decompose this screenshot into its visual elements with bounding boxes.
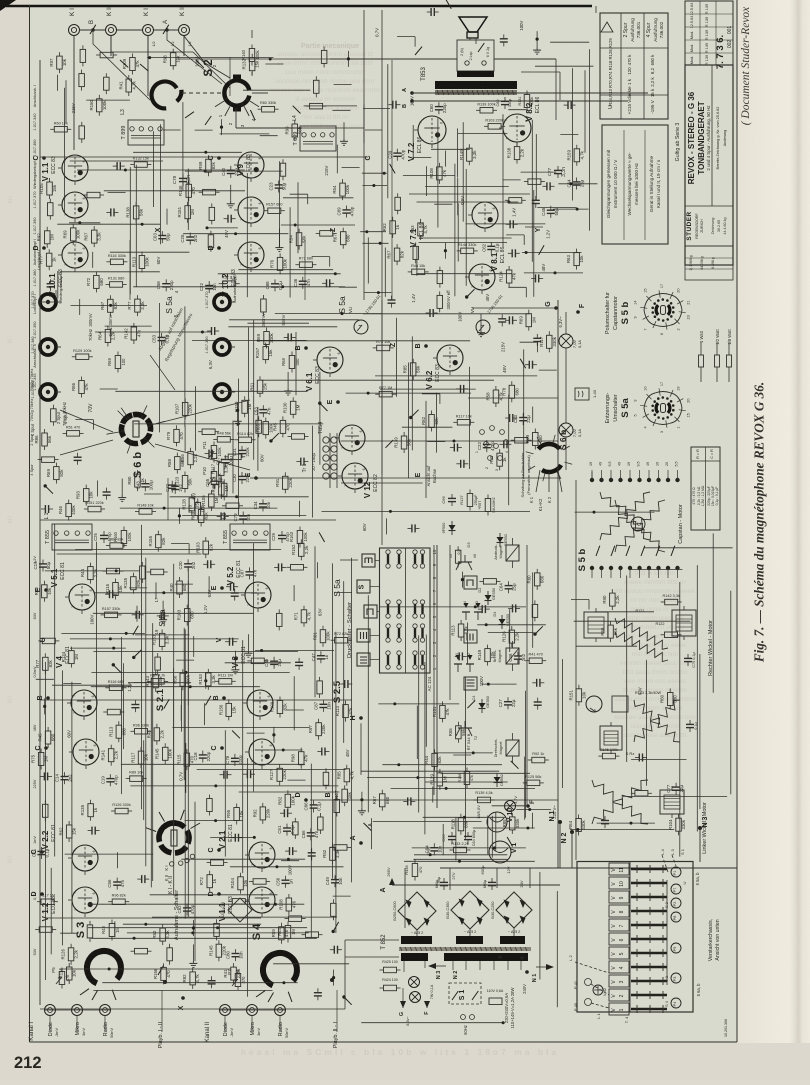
svg-text:19: 19: [154, 629, 159, 634]
svg-text:50μ: 50μ: [282, 182, 287, 190]
svg-text:f 4: f 4: [463, 601, 467, 605]
svg-text:6: 6: [337, 352, 341, 354]
svg-text:47n: 47n: [314, 830, 319, 838]
svg-text:9F550: 9F550: [442, 523, 446, 534]
svg-text:47k: 47k: [304, 754, 309, 762]
svg-text:212: 212: [14, 1054, 42, 1072]
svg-text:1.017.370: 1.017.370: [205, 292, 209, 309]
svg-text:12.5.64: 12.5.64: [690, 3, 694, 16]
svg-text:22μ: 22μ: [526, 415, 531, 423]
svg-text:R125 56k: R125 56k: [525, 775, 541, 779]
svg-text:225V: 225V: [33, 779, 37, 788]
svg-text:D: D: [208, 891, 215, 896]
svg-text:eee mmm ooo eeeee: eee mmm ooo eeeee: [624, 678, 686, 685]
svg-text:56k: 56k: [416, 365, 421, 373]
svg-text:48V: 48V: [541, 264, 546, 272]
svg-text:C14: C14: [55, 774, 60, 783]
svg-text:2: 2: [74, 909, 78, 911]
svg-text:ll1l: ll1l: [8, 516, 14, 523]
svg-text:C66: C66: [301, 830, 306, 839]
svg-text:60V: 60V: [156, 257, 161, 265]
svg-text:C32: C32: [165, 483, 170, 492]
svg-text:P1: P1: [673, 871, 677, 876]
svg-text:6: 6: [258, 202, 262, 204]
svg-text:R109: R109: [270, 701, 275, 712]
svg-text:( Document Studer-Revox: ( Document Studer-Revox: [740, 6, 752, 125]
svg-text:82k: 82k: [208, 543, 213, 551]
svg-text:215V: 215V: [324, 165, 329, 175]
svg-text:C61: C61: [277, 825, 282, 834]
svg-text:K1+K2: K1+K2: [538, 498, 543, 511]
svg-text:rrr rrrr nnn aaaaa: rrr rrrr nnn aaaaa: [630, 597, 680, 604]
svg-text:470 : 470 Ω: 470 : 470 Ω: [692, 487, 696, 505]
svg-text:2n2: 2n2: [193, 234, 198, 242]
svg-text:0,7V: 0,7V: [375, 28, 380, 37]
svg-text:680: 680: [538, 435, 543, 443]
svg-text:100k: 100k: [71, 505, 76, 515]
svg-text:Drucktaster - Schalter: Drucktaster - Schalter: [347, 602, 353, 658]
svg-text:Mikro: Mikro: [250, 1022, 256, 1035]
svg-text:100k: 100k: [145, 256, 150, 266]
svg-text:0,1μ: 0,1μ: [290, 825, 295, 834]
svg-text:R90: R90: [602, 595, 607, 604]
svg-text:7: 7: [318, 352, 322, 354]
svg-text:RT 544 B: RT 544 B: [466, 733, 471, 750]
svg-text:R40: R40: [169, 583, 174, 592]
svg-text:C87: C87: [240, 569, 245, 578]
svg-text:iii eeeeee rrr mmmm: iii eeeeee rrr mmmm: [295, 96, 355, 103]
svg-text:R71: R71: [294, 612, 299, 621]
svg-text:4,7k: 4,7k: [579, 150, 584, 159]
svg-text:15k: 15k: [268, 349, 273, 357]
svg-text:12V: 12V: [506, 866, 511, 873]
svg-text:A: A: [350, 835, 357, 840]
svg-text:680: 680: [190, 611, 195, 619]
svg-text:680: 680: [182, 583, 187, 591]
svg-text:7: 7: [250, 892, 254, 894]
svg-text:9: 9: [633, 316, 637, 318]
svg-text:100k: 100k: [290, 795, 295, 805]
svg-text:C30: C30: [232, 473, 237, 481]
svg-text:17: 17: [154, 597, 159, 602]
svg-text:1M: 1M: [74, 654, 79, 660]
svg-text:R75: R75: [31, 754, 36, 763]
svg-text:7: 7: [72, 695, 76, 697]
svg-text:7: 7: [473, 207, 477, 209]
svg-text:4,7k: 4,7k: [307, 611, 312, 620]
svg-text:1 k: 1 k: [627, 78, 632, 85]
svg-text:T 899: T 899: [121, 126, 127, 140]
svg-text:17: 17: [660, 382, 664, 386]
svg-text:15k: 15k: [255, 60, 260, 68]
svg-text:R86: R86: [71, 382, 76, 391]
svg-text:F: F: [530, 800, 536, 804]
svg-text:6: 6: [269, 847, 273, 849]
svg-text:0,1A: 0,1A: [577, 340, 582, 349]
svg-text:2: 2: [249, 712, 253, 714]
svg-text:56k: 56k: [297, 126, 302, 134]
svg-text:82k: 82k: [400, 250, 405, 258]
svg-text:7: 7: [419, 121, 423, 123]
svg-text:N 1: N 1: [549, 810, 556, 821]
svg-text:6,3v~: 6,3v~: [406, 1016, 410, 1026]
svg-text:300mV eff: 300mV eff: [446, 290, 451, 310]
svg-text:680: 680: [121, 727, 126, 735]
svg-text:R151: R151: [568, 689, 573, 700]
svg-text:680: 680: [51, 733, 56, 741]
svg-text:10: 10: [432, 549, 437, 554]
svg-text:Magnet: Magnet: [498, 545, 503, 559]
svg-text:10k: 10k: [581, 691, 586, 699]
svg-text:R45: R45: [38, 733, 43, 742]
svg-text:U: U: [682, 881, 687, 884]
svg-text:S 5a: S 5a: [332, 579, 342, 597]
svg-text:R92: R92: [252, 809, 257, 818]
svg-text:2: 2: [485, 467, 489, 469]
svg-text:1M: 1M: [44, 756, 49, 762]
svg-text:1.017.380: 1.017.380: [33, 270, 37, 287]
svg-text:R58: R58: [167, 459, 172, 468]
svg-text:10k: 10k: [579, 255, 584, 263]
svg-text:6,3V: 6,3V: [208, 360, 213, 369]
svg-text:R69: R69: [518, 316, 523, 325]
svg-text:56U40HZ: 56U40HZ: [492, 497, 496, 513]
svg-text:15 k: 15 k: [650, 88, 655, 97]
svg-text:5: 5: [633, 414, 637, 416]
svg-text:25μ: 25μ: [277, 659, 282, 667]
svg-text:R149: R149: [459, 149, 464, 160]
svg-text:25μ: 25μ: [579, 179, 584, 187]
svg-text:R139 100k: R139 100k: [477, 102, 495, 106]
svg-text:6: 6: [492, 207, 496, 209]
svg-text:6: 6: [457, 350, 461, 352]
svg-text:Wechselspannungswerte ≈ ge-: Wechselspannungswerte ≈ ge-: [627, 152, 632, 215]
svg-text:15k: 15k: [263, 382, 268, 390]
svg-text:P 40: P 40: [573, 1002, 578, 1011]
svg-text:P10: P10: [202, 467, 207, 475]
svg-text:C23: C23: [269, 182, 274, 191]
svg-text:R126: R126: [501, 631, 506, 642]
svg-text:R60 10k: R60 10k: [54, 121, 68, 125]
svg-text:L 3: L 3: [670, 849, 675, 855]
svg-text:R149: R149: [477, 649, 482, 660]
svg-text:R51 470: R51 470: [66, 425, 80, 429]
svg-text:Kanal II: Kanal II: [205, 1022, 211, 1043]
svg-text:R 139: R 139: [705, 30, 709, 40]
svg-text:7: 7: [239, 202, 243, 204]
svg-text:2: 2: [619, 994, 625, 997]
svg-text:G: G: [545, 301, 552, 307]
svg-text:470p: 470p: [400, 149, 405, 159]
svg-text:4 Spur: 4 Spur: [30, 464, 34, 476]
svg-text:0,1μ: 0,1μ: [317, 802, 322, 811]
svg-text:C27: C27: [498, 699, 503, 708]
svg-text:R78: R78: [501, 387, 506, 396]
svg-text:Ausfuhrung: Ausfuhrung: [653, 18, 658, 42]
svg-text:0,7V: 0,7V: [33, 892, 37, 900]
svg-text:100V: 100V: [287, 865, 292, 875]
svg-text:R103: R103: [195, 542, 200, 553]
svg-text:470p: 470p: [190, 904, 195, 914]
svg-text:1M: 1M: [190, 209, 195, 215]
svg-text:63V: 63V: [207, 590, 212, 598]
svg-text:R135: R135: [123, 577, 128, 588]
svg-text:ECL 86: ECL 86: [535, 97, 541, 114]
svg-text:220k: 220k: [265, 808, 270, 818]
svg-text:B30-C350: B30-C350: [446, 901, 450, 918]
svg-text:C53: C53: [513, 415, 518, 424]
svg-text:R69: R69: [46, 469, 51, 478]
svg-text:A: A: [402, 88, 408, 92]
svg-text:470p: 470p: [349, 206, 354, 216]
svg-text:56k: 56k: [613, 627, 618, 635]
svg-text:Entzerrungs-: Entzerrungs-: [605, 392, 611, 423]
svg-text:6,3V~: 6,3V~: [558, 316, 563, 328]
svg-text:R132 15k: R132 15k: [133, 157, 149, 161]
svg-text:47k: 47k: [84, 383, 89, 391]
svg-text:220k: 220k: [288, 477, 293, 487]
svg-text:-3mV: -3mV: [55, 1028, 59, 1038]
svg-text:L3: L3: [120, 109, 126, 115]
svg-text:100k: 100k: [76, 229, 81, 239]
svg-text:R64: R64: [568, 820, 573, 829]
svg-text:R111 1M: R111 1M: [218, 673, 233, 677]
svg-text:Capstanmotor: Capstanmotor: [613, 296, 619, 330]
svg-text:1.017.390: 1.017.390: [33, 218, 37, 235]
svg-text:R82: R82: [421, 416, 426, 425]
svg-text:C43: C43: [135, 481, 140, 490]
svg-text:C36: C36: [293, 278, 298, 287]
svg-text:2: 2: [73, 712, 77, 714]
svg-text:R85: R85: [502, 819, 507, 828]
svg-text:22μ: 22μ: [234, 168, 239, 176]
svg-text:N 1: N 1: [532, 974, 538, 983]
svg-text:C64: C64: [424, 845, 429, 854]
svg-text:2,2k: 2,2k: [193, 453, 198, 462]
svg-text:10n: 10n: [212, 283, 217, 291]
svg-text:R77: R77: [127, 301, 132, 310]
svg-text:C79: C79: [233, 513, 238, 522]
svg-text:30.2.65: 30.2.65: [717, 220, 721, 232]
svg-text:ECC 81: ECC 81: [228, 824, 234, 842]
svg-text:GES50: GES50: [492, 588, 496, 600]
svg-text:R122: R122: [655, 622, 664, 626]
svg-text:R108: R108: [278, 899, 283, 910]
svg-text:215V: 215V: [71, 103, 76, 113]
svg-text:R133 2,2k: R133 2,2k: [451, 842, 468, 846]
svg-text:Anderung: Anderung: [723, 130, 727, 146]
svg-text:R48: R48: [211, 484, 216, 493]
svg-text:Kanal I: Kanal I: [29, 1022, 35, 1041]
svg-text:Kanal I und II, 19 cm / s: Kanal I und II, 19 cm / s: [656, 159, 661, 208]
svg-text:47k: 47k: [512, 272, 517, 280]
svg-text:S 5 b: S 5 b: [620, 301, 631, 324]
svg-text:7: 7: [644, 328, 648, 330]
svg-text:15k: 15k: [231, 706, 236, 714]
svg-text:R99: R99: [489, 455, 494, 464]
svg-text:680: 680: [673, 695, 678, 703]
svg-text:-195 V: -195 V: [650, 99, 655, 113]
svg-text:680: 680: [385, 796, 390, 804]
svg-text:R77 1M: R77 1M: [379, 386, 392, 390]
svg-text:R151: R151: [152, 634, 157, 645]
svg-text:R 139: R 139: [705, 17, 709, 27]
svg-text:3,3k: 3,3k: [224, 464, 229, 473]
svg-text:1 Watt: 1 Watt: [699, 330, 704, 343]
svg-text:4 Spur: 4 Spur: [646, 22, 652, 37]
svg-text:C26: C26: [93, 532, 98, 540]
svg-text:2: 2: [247, 604, 251, 606]
svg-text:1M: 1M: [247, 403, 252, 409]
svg-text:19: 19: [589, 462, 593, 466]
svg-text:470: 470: [166, 970, 171, 978]
svg-text:R115: R115: [176, 754, 181, 765]
svg-text:5 5a, b: 5 5a, b: [695, 872, 700, 885]
svg-text:20: 20: [677, 288, 681, 292]
svg-text:6 V 2g: 6 V 2g: [486, 47, 490, 57]
svg-text:10k: 10k: [89, 491, 94, 499]
svg-text:R116 680: R116 680: [108, 680, 124, 684]
svg-text:G: G: [399, 1012, 405, 1016]
svg-text:10: 10: [644, 386, 648, 390]
svg-text:Fig. 7. — Schéma du magnétopho: Fig. 7. — Schéma du magnétophone REVOX G…: [752, 382, 767, 663]
svg-text:R71 680: R71 680: [299, 257, 313, 261]
svg-text:0,1μ : 0,1 μF: 0,1μ : 0,1 μF: [715, 487, 719, 506]
svg-text:Gerat in Stellung Aufnahme: Gerat in Stellung Aufnahme: [649, 155, 654, 212]
svg-text:R52: R52: [322, 849, 327, 858]
svg-text:R 139: R 139: [705, 43, 709, 53]
svg-text:R48 15k: R48 15k: [411, 264, 425, 268]
svg-text:3,3k: 3,3k: [140, 301, 145, 310]
svg-text:100k: 100k: [283, 258, 288, 268]
svg-text:T2: T2: [474, 736, 478, 740]
svg-text:600μ: 600μ: [483, 880, 487, 889]
svg-text:R58: R58: [485, 392, 490, 401]
svg-text:10k: 10k: [72, 969, 77, 977]
svg-text:R67: R67: [387, 250, 392, 259]
svg-text:110V 0,6A: 110V 0,6A: [487, 989, 504, 993]
svg-text:63V: 63V: [318, 608, 323, 616]
svg-text:4,7k: 4,7k: [131, 81, 136, 90]
svg-text:220k: 220k: [245, 447, 250, 457]
svg-text:0,7V: 0,7V: [179, 772, 184, 781]
svg-text:N 3: N 3: [702, 816, 709, 827]
svg-text:6: 6: [258, 247, 262, 249]
svg-text:R163: R163: [289, 531, 294, 542]
svg-text:R59: R59: [271, 929, 276, 938]
svg-text:R = R: R = R: [696, 449, 700, 459]
svg-text:7: 7: [248, 695, 252, 697]
svg-text:Diode: Diode: [48, 1022, 54, 1036]
svg-text:100k: 100k: [345, 184, 350, 194]
svg-text:10n: 10n: [326, 702, 331, 710]
svg-text:50μ: 50μ: [554, 208, 559, 216]
svg-text:4: 4: [644, 426, 648, 428]
svg-text:R55: R55: [600, 627, 605, 636]
svg-text:3,3k: 3,3k: [335, 849, 340, 858]
svg-text:82k: 82k: [113, 301, 118, 309]
svg-text:3mV: 3mV: [257, 1028, 261, 1036]
svg-text:S 1: S 1: [459, 990, 466, 1001]
svg-text:Bereits Zeichnung g. Nr. vom 2: Bereits Zeichnung g. Nr. vom 25.6.62: [716, 107, 720, 170]
svg-text:R63: R63: [566, 255, 571, 264]
svg-text:7: 7: [470, 269, 474, 271]
svg-text:C20: C20: [178, 561, 183, 570]
svg-text:R145: R145: [155, 748, 160, 759]
svg-text:47n: 47n: [306, 279, 311, 287]
svg-text:1) 1.965 g: 1) 1.965 g: [689, 255, 693, 270]
svg-text:C: C: [637, 522, 643, 526]
svg-text:1k: 1k: [395, 224, 400, 229]
svg-text:K I: K I: [164, 865, 169, 870]
svg-text:R156: R156: [153, 968, 158, 979]
svg-text:470 k: 470 k: [627, 54, 632, 66]
svg-text:001: 001: [727, 26, 733, 35]
svg-text:330k: 330k: [269, 332, 274, 342]
svg-text:14: 14: [633, 300, 637, 304]
svg-text:100k: 100k: [185, 674, 190, 684]
svg-text:300mV: 300mV: [88, 313, 93, 326]
svg-text:100k: 100k: [255, 50, 260, 60]
svg-text:V 6.2: V 6.2: [425, 370, 434, 389]
svg-text:P4: P4: [673, 1002, 677, 1007]
svg-text:R103 220k: R103 220k: [485, 118, 503, 122]
svg-text:220p: 220p: [169, 280, 174, 290]
svg-text:R85: R85: [403, 365, 408, 374]
svg-text:C25: C25: [180, 234, 185, 243]
svg-text:6: 6: [265, 587, 269, 589]
svg-text:E: E: [211, 585, 218, 590]
svg-text:21: 21: [687, 300, 691, 304]
svg-text:100k: 100k: [217, 447, 222, 457]
svg-text:Radio: Radio: [278, 1022, 284, 1036]
svg-text:20: 20: [687, 398, 691, 402]
svg-text:R139: R139: [394, 437, 399, 448]
svg-text:R131 680: R131 680: [108, 277, 124, 281]
svg-text:10.201.366: 10.201.366: [724, 1019, 728, 1037]
svg-text:265V: 265V: [386, 867, 391, 877]
svg-text:R138: R138: [458, 773, 462, 782]
svg-text:R134: R134: [61, 651, 66, 662]
svg-text:R146: R146: [178, 185, 183, 196]
svg-text:R41 470: R41 470: [529, 653, 543, 657]
svg-text:600μ: 600μ: [480, 865, 485, 875]
svg-text:49: 49: [646, 462, 650, 466]
svg-text:+215 V: +215 V: [627, 99, 632, 115]
svg-text:4,7k: 4,7k: [464, 626, 469, 635]
svg-text:47k: 47k: [442, 169, 447, 177]
svg-text:ECC 83: ECC 83: [435, 364, 441, 382]
svg-text:S 1: S 1: [680, 848, 685, 855]
svg-text:S 3: S 3: [75, 922, 87, 939]
svg-text:P 41: P 41: [573, 980, 578, 989]
svg-text:45V: 45V: [191, 493, 196, 501]
svg-text:B30-C250: B30-C250: [491, 901, 495, 918]
svg-text:2 (b): 2 (b): [460, 47, 464, 56]
svg-text:C86: C86: [304, 802, 309, 811]
svg-text:20: 20: [665, 462, 669, 466]
svg-text:45V: 45V: [224, 230, 229, 238]
svg-text:2: 2: [240, 174, 244, 176]
svg-text:B250-C600: B250-C600: [393, 901, 397, 920]
svg-text:A: A: [163, 20, 169, 24]
svg-text:C66: C66: [441, 496, 446, 504]
svg-text:82k: 82k: [161, 537, 166, 545]
svg-text:2: 2: [75, 761, 79, 763]
svg-text:Buchse: Buchse: [432, 468, 437, 483]
svg-text:3: 3: [619, 980, 625, 983]
svg-text:Magnet: Magnet: [497, 649, 502, 663]
